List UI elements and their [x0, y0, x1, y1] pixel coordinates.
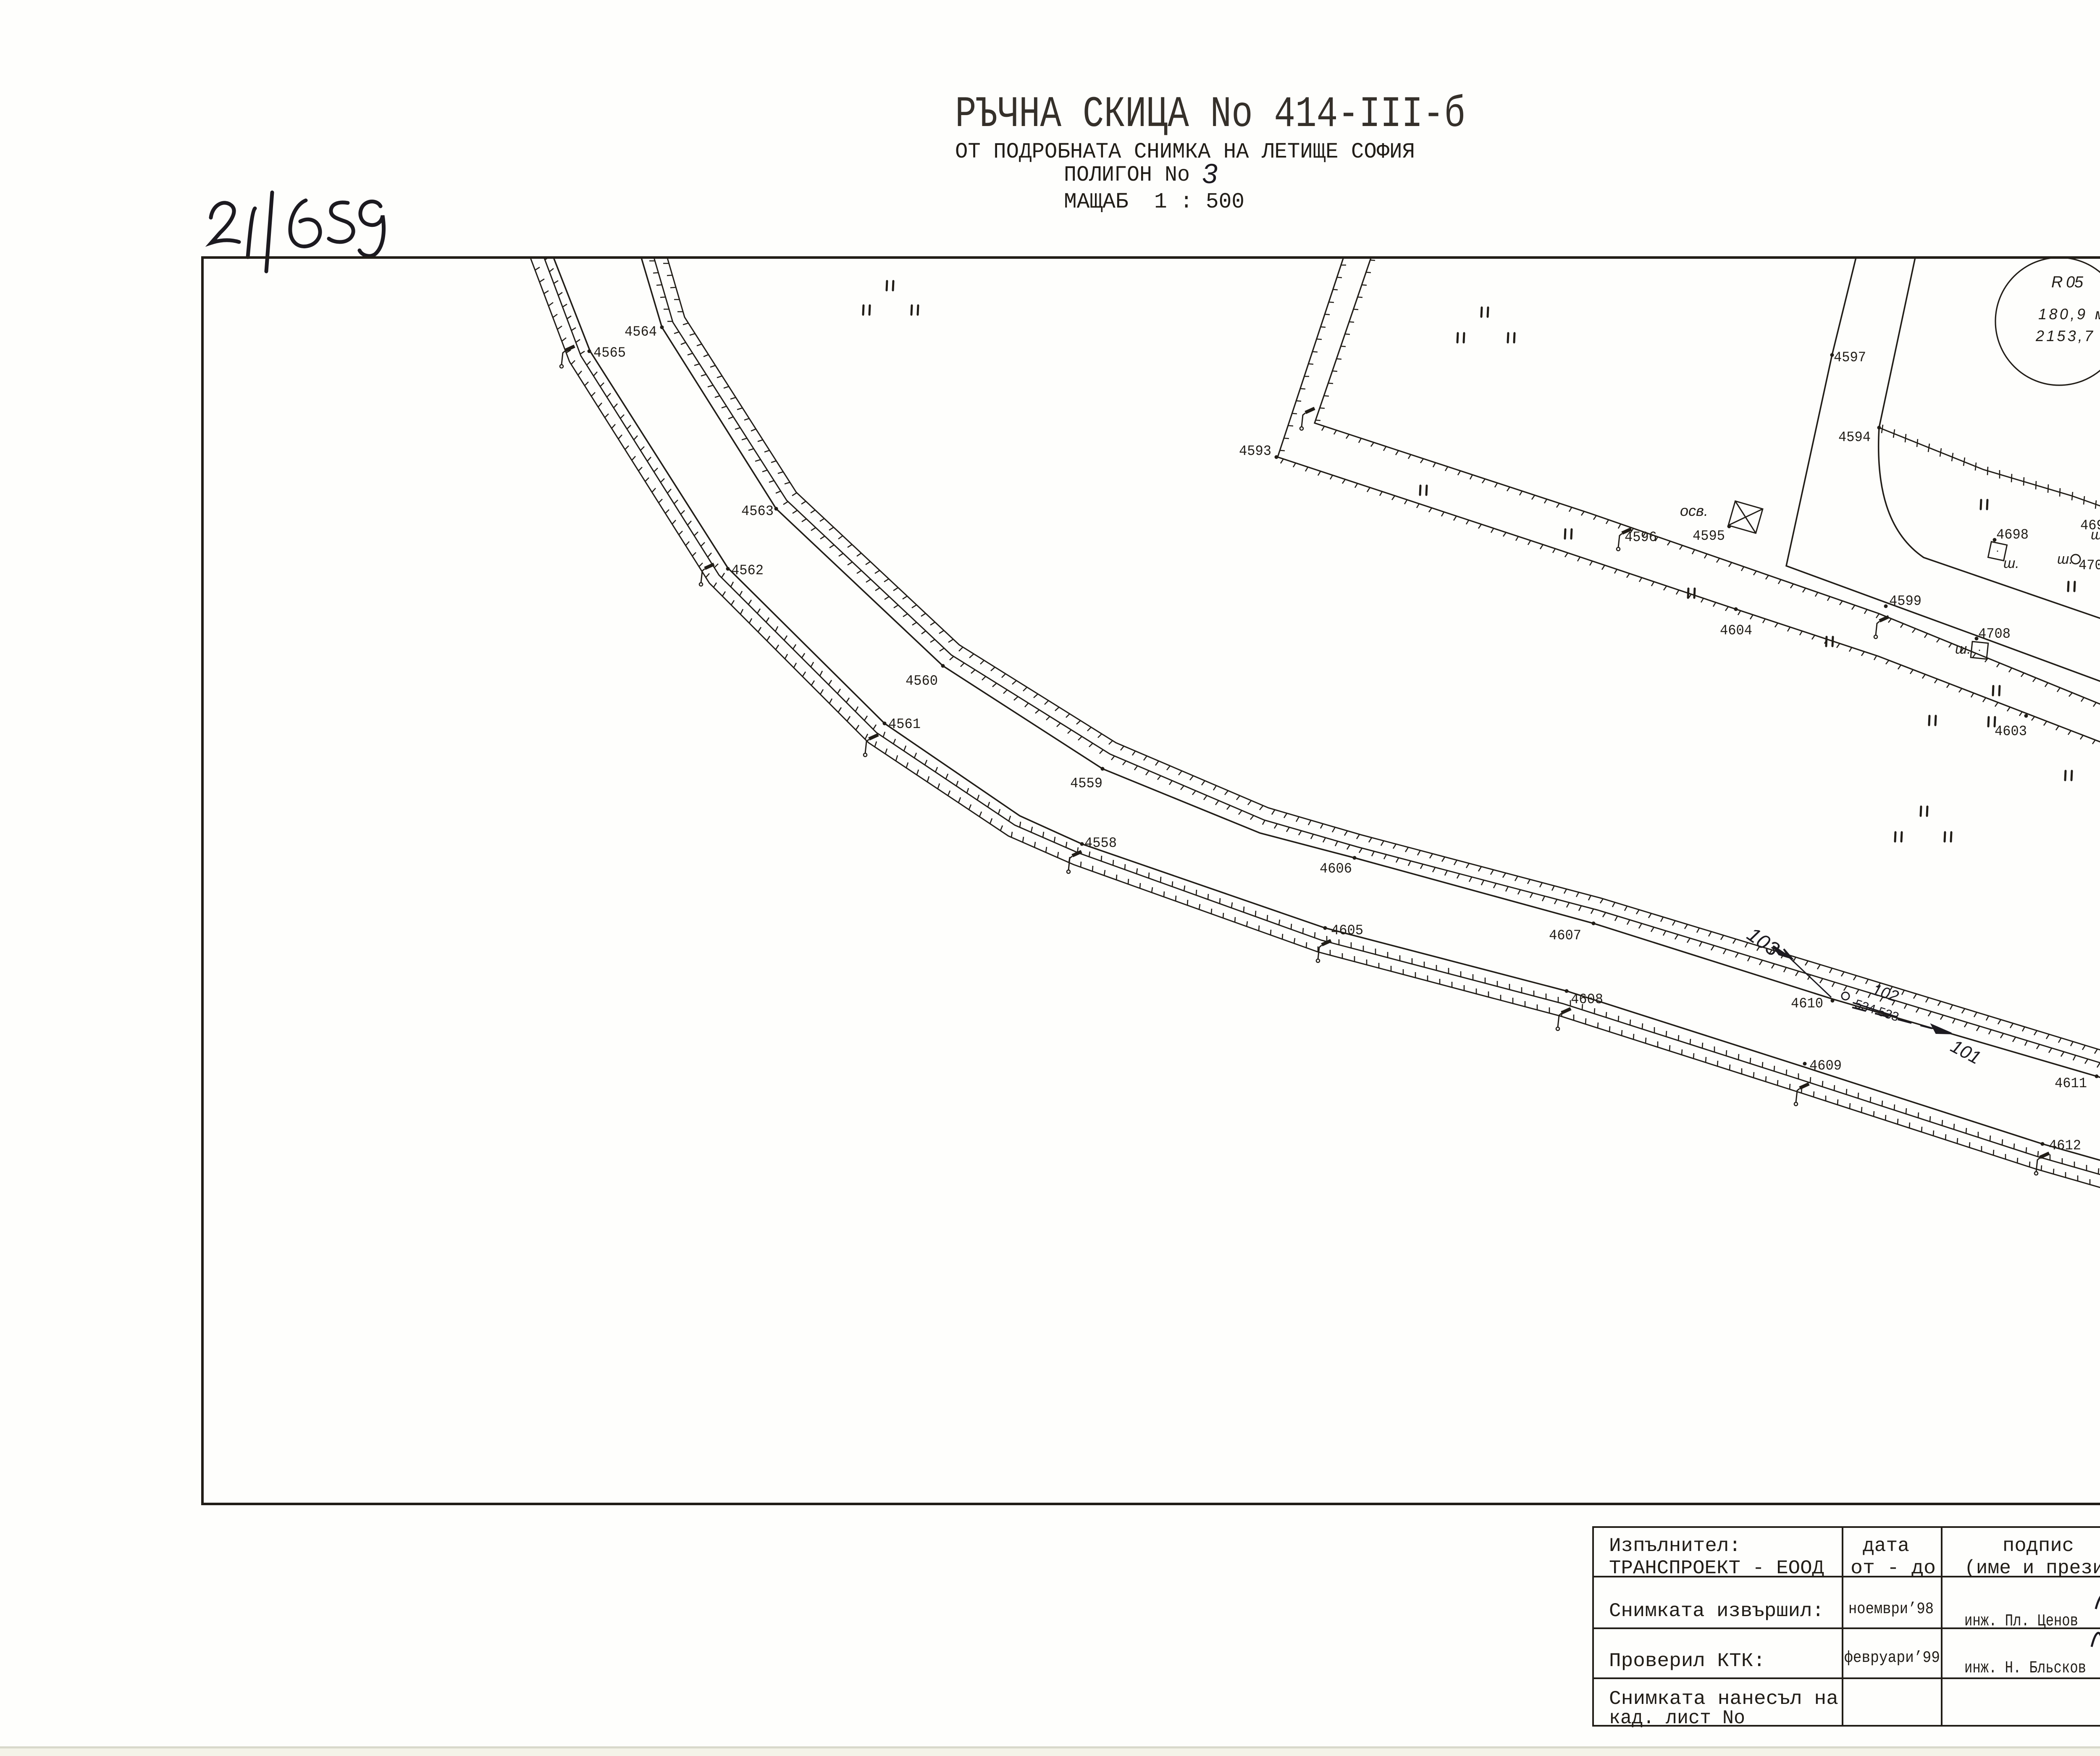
svg-text:Изпълнител:: Изпълнител:: [1609, 1535, 1741, 1557]
svg-text:4565: 4565: [593, 345, 626, 361]
svg-text:4561: 4561: [888, 717, 921, 733]
svg-text:подпис: подпис: [2003, 1535, 2074, 1557]
svg-text:4603: 4603: [1995, 724, 2027, 740]
svg-text:3: 3: [1202, 158, 1218, 189]
svg-text:инж. Н. Бльсков: инж. Н. Бльсков: [1964, 1659, 2086, 1678]
svg-text:4708: 4708: [1978, 626, 2011, 642]
svg-text:4604: 4604: [1720, 623, 1752, 639]
svg-text:4594: 4594: [1838, 430, 1871, 446]
svg-text:дата: дата: [1863, 1535, 1909, 1557]
svg-text:МАЩАБ 1 : 500: МАЩАБ 1 : 500: [1064, 189, 1244, 214]
svg-text:4605: 4605: [1331, 923, 1363, 939]
svg-text:ш.: ш.: [2003, 555, 2019, 571]
svg-text:ш.: ш.: [2091, 527, 2100, 543]
svg-text:ТРАНСПРОЕКТ - ЕООД: ТРАНСПРОЕКТ - ЕООД: [1609, 1557, 1824, 1579]
svg-text:R 05: R 05: [2051, 273, 2084, 291]
svg-text:4559: 4559: [1070, 776, 1102, 792]
svg-text:от - до: от - до: [1851, 1557, 1936, 1579]
svg-text:Проверил КТК:: Проверил КТК:: [1609, 1650, 1765, 1672]
svg-text:Снимката нанесъл на: Снимката нанесъл на: [1609, 1688, 1838, 1710]
svg-text:4562: 4562: [731, 563, 764, 579]
svg-text:ПОЛИГОН No: ПОЛИГОН No: [1064, 163, 1190, 187]
svg-text:февруари’99: февруари’99: [1844, 1649, 1940, 1667]
svg-text:4596: 4596: [1625, 530, 1657, 546]
svg-text:ноември’98: ноември’98: [1848, 1600, 1934, 1618]
svg-text:4599: 4599: [1889, 594, 1921, 610]
svg-text:4560: 4560: [906, 673, 938, 689]
svg-text:4607: 4607: [1549, 928, 1581, 944]
svg-text:4608: 4608: [1571, 992, 1603, 1008]
svg-text:4611: 4611: [2055, 1076, 2087, 1092]
svg-text:ш.: ш.: [2057, 551, 2073, 567]
svg-text:2153,7: 2153,7: [2035, 327, 2094, 344]
svg-text:осв.: осв.: [1680, 502, 1708, 519]
svg-text:инж. Пл. Ценов: инж. Пл. Ценов: [1964, 1612, 2078, 1631]
svg-text:ОТ ПОДРОБНАТА СНИМКА НА ЛЕТИЩЕ: ОТ ПОДРОБНАТА СНИМКА НА ЛЕТИЩЕ СОФИЯ: [955, 139, 1415, 164]
svg-text:4564: 4564: [625, 324, 657, 340]
svg-text:4593: 4593: [1239, 444, 1271, 460]
svg-text:РЪЧНА СКИЦА No 414-III-б: РЪЧНА СКИЦА No 414-III-б: [955, 90, 1465, 139]
svg-text:4606: 4606: [1320, 861, 1352, 877]
svg-text:4612: 4612: [2049, 1138, 2081, 1154]
svg-text:м: м: [2095, 305, 2100, 323]
svg-text:4597: 4597: [1834, 350, 1866, 366]
svg-text:4595: 4595: [1693, 528, 1725, 544]
svg-text:4698: 4698: [1996, 527, 2029, 543]
svg-text:кад. лист No: кад. лист No: [1609, 1707, 1745, 1729]
svg-text:4563: 4563: [741, 504, 774, 520]
svg-text:ш.: ш.: [1955, 641, 1971, 657]
svg-text:4700: 4700: [2079, 558, 2100, 574]
svg-text:180,9: 180,9: [2038, 305, 2085, 323]
svg-text:(име и презиме): (име и презиме): [1964, 1557, 2100, 1579]
svg-text:Снимката извършил:: Снимката извършил:: [1609, 1600, 1824, 1622]
svg-text:4558: 4558: [1084, 836, 1117, 852]
svg-text:4610: 4610: [1791, 996, 1823, 1012]
svg-text:4609: 4609: [1809, 1058, 1842, 1074]
